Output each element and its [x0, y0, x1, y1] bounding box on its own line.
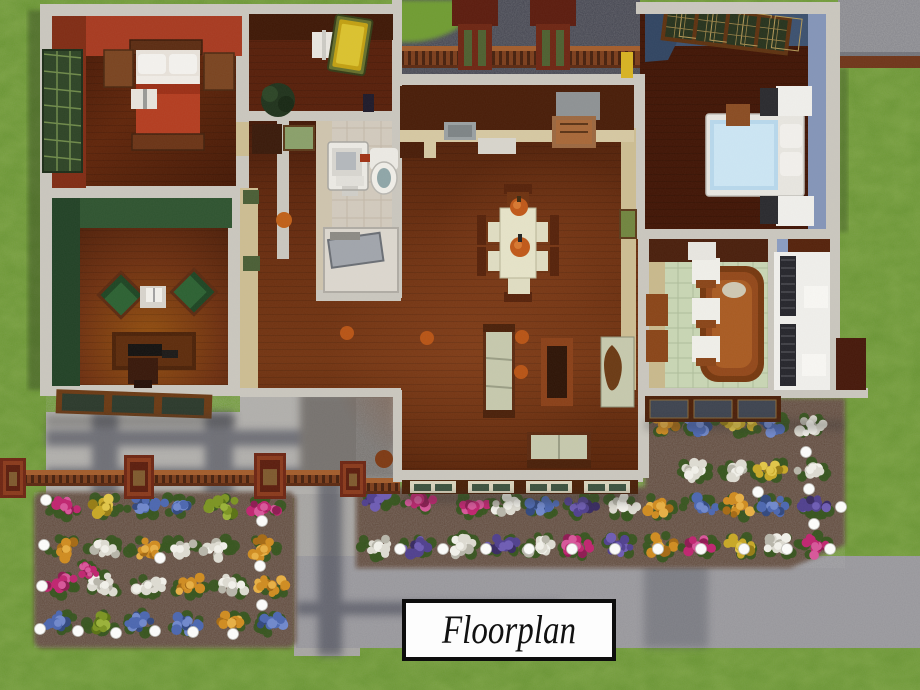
svg-text:Floorplan: Floorplan — [441, 607, 576, 652]
